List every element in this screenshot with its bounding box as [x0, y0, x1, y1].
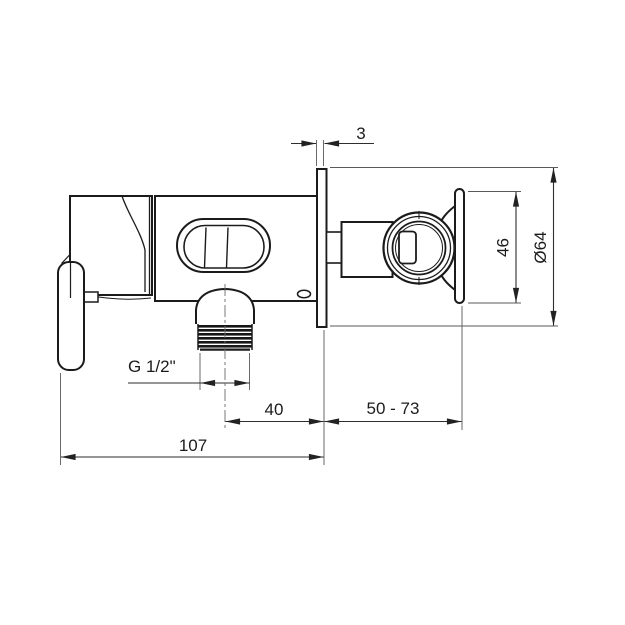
- dim-installation-depth: 50 - 73: [325, 399, 462, 422]
- holder-stub: [327, 232, 342, 263]
- technical-drawing-canvas: 3 46 Ø64 G 1/2" 40 50 - 73 107: [0, 0, 625, 625]
- dim-label-body-length: 107: [179, 436, 207, 455]
- dim-label-plate-thickness: 3: [356, 124, 365, 143]
- dim-outlet-to-wall: 40: [226, 400, 324, 422]
- dim-label-holder-height: 46: [494, 238, 513, 257]
- holder-ring: [384, 211, 455, 285]
- dim-label-installation-depth: 50 - 73: [367, 399, 420, 418]
- dim-body-length: 107: [61, 436, 324, 457]
- dim-plate-thickness: 3: [291, 124, 374, 166]
- dim-label-outlet-thread: G 1/2": [128, 357, 176, 376]
- shower-holder: [327, 189, 465, 303]
- dim-label-outlet-to-wall: 40: [265, 400, 284, 419]
- ring-clip: [399, 232, 416, 264]
- wall-plate: [317, 169, 327, 327]
- diverter-knob: [177, 219, 270, 272]
- shower-valve-drawing: 3 46 Ø64 G 1/2" 40 50 - 73 107: [0, 0, 625, 625]
- dim-outlet-thread: G 1/2": [128, 353, 250, 390]
- dim-label-rosette-diameter: Ø64: [531, 231, 550, 263]
- holder-flange: [455, 189, 464, 303]
- screw-hole: [298, 290, 311, 298]
- dim-holder-height: 46: [468, 192, 521, 304]
